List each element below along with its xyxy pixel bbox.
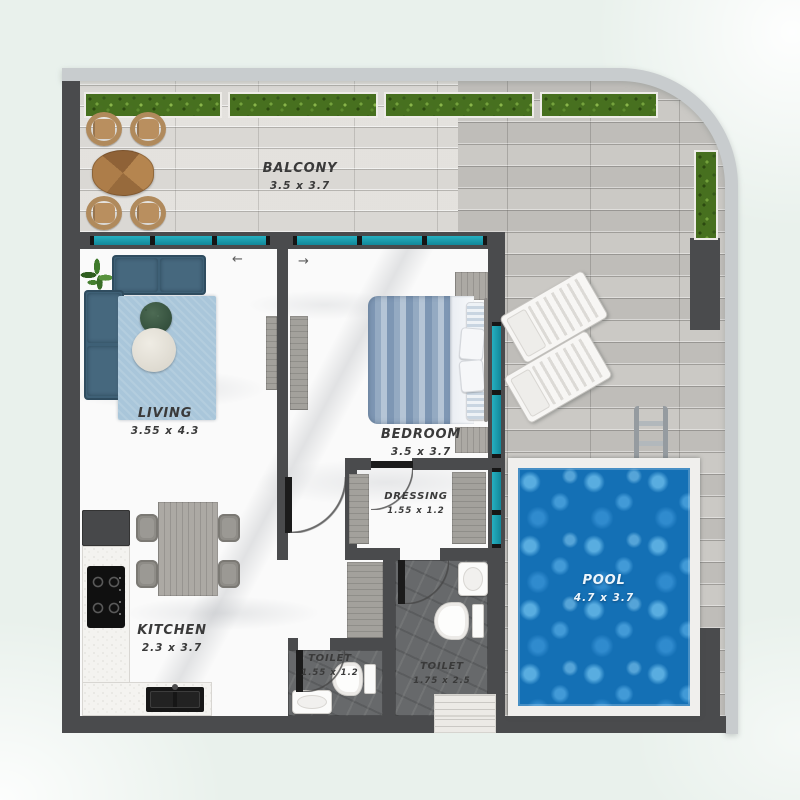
dining-chair xyxy=(136,560,158,588)
pool-dims: 4.7 x 3.7 xyxy=(544,591,664,606)
tv-unit xyxy=(266,316,277,390)
bedroom-label: BEDROOM 3.5 x 3.7 xyxy=(366,426,476,460)
fridge xyxy=(82,510,130,546)
kitchen-sink xyxy=(146,687,204,712)
dressing-name: DRESSING xyxy=(376,490,456,505)
living-dims: 3.55 x 4.3 xyxy=(115,424,215,439)
hedge-planter xyxy=(228,92,378,118)
dining-chair xyxy=(218,514,240,542)
toilet-tank xyxy=(472,604,484,638)
dressing-label: DRESSING 1.55 x 1.2 xyxy=(376,490,456,517)
toilet-large-name: TOILET xyxy=(398,660,486,675)
wall-left xyxy=(62,81,80,716)
toilet-small-name: TOILET xyxy=(298,652,362,667)
outdoor-chair xyxy=(86,196,122,230)
entrance-step xyxy=(434,694,496,716)
window-mullion xyxy=(492,510,501,515)
toilet-large-dims: 1.75 x 2.5 xyxy=(398,675,486,687)
wall-dressing-south-a xyxy=(345,548,400,560)
pool-name: POOL xyxy=(544,572,664,591)
hedge-planter xyxy=(540,92,658,118)
bed-duvet xyxy=(368,296,454,424)
bedroom-dims: 3.5 x 3.7 xyxy=(366,445,476,460)
door-leaf-toilet-large xyxy=(398,560,405,604)
hedge-planter xyxy=(384,92,534,118)
living-window xyxy=(90,236,270,245)
coffee-table-cream xyxy=(132,328,176,372)
balcony-label: BALCONY 3.5 x 3.7 xyxy=(240,160,360,194)
dining-table xyxy=(158,502,218,596)
bedroom-wardrobe xyxy=(290,316,308,410)
wall-bottom xyxy=(62,716,726,733)
toilet-small-label: TOILET 1.55 x 1.2 xyxy=(298,652,362,679)
toilet-tank xyxy=(364,664,376,694)
wall-dressing-south-b xyxy=(440,548,488,560)
outdoor-chair xyxy=(86,112,122,146)
cooktop xyxy=(87,566,125,628)
door-leaf-dressing xyxy=(371,461,413,468)
dressing-wardrobe-left xyxy=(349,474,369,544)
door-arc-toilet-large xyxy=(405,560,449,604)
wall-toilet-north-b xyxy=(330,638,383,650)
bed-headboard xyxy=(484,298,488,422)
kitchen-label: KITCHEN 2.3 x 3.7 xyxy=(122,622,222,656)
kitchen-name: KITCHEN xyxy=(122,622,222,641)
bedroom-window-right xyxy=(492,322,501,458)
dining-chair xyxy=(218,560,240,588)
outdoor-chair xyxy=(130,112,166,146)
window-mullion xyxy=(422,236,427,245)
wall-toilets-divider xyxy=(383,560,395,716)
living-label: LIVING 3.55 x 4.3 xyxy=(115,405,215,439)
pool-label: POOL 4.7 x 3.7 xyxy=(544,572,664,606)
balcony-dims: 3.5 x 3.7 xyxy=(240,179,360,194)
bed-pillow xyxy=(459,327,486,361)
hall-closet xyxy=(347,562,383,638)
potted-plant xyxy=(80,258,114,292)
wall-terrace-column-upper xyxy=(690,238,720,330)
window-mullion xyxy=(212,236,217,245)
kitchen-dims: 2.3 x 3.7 xyxy=(122,641,222,656)
dressing-dims: 1.55 x 1.2 xyxy=(376,505,456,517)
wall-toilet-north-a xyxy=(288,638,298,650)
sofa-top xyxy=(112,255,206,295)
bedroom-name: BEDROOM xyxy=(366,426,476,445)
bedroom-window-top xyxy=(293,236,487,245)
washbasin-large xyxy=(458,562,488,596)
toilet-large-label: TOILET 1.75 x 2.5 xyxy=(398,660,486,687)
toilet-small-dims: 1.55 x 1.2 xyxy=(298,667,362,679)
window-mullion xyxy=(492,390,501,395)
bed xyxy=(368,296,488,424)
hedge-planter-right xyxy=(694,150,718,240)
door-arc-hall xyxy=(290,477,346,533)
dining-chair xyxy=(136,514,158,542)
living-name: LIVING xyxy=(115,405,215,424)
washbasin-small xyxy=(292,690,332,714)
door-swing-arrow: → xyxy=(298,255,309,268)
toilet-bowl xyxy=(434,602,469,640)
balcony-name: BALCONY xyxy=(240,160,360,179)
door-swing-arrow: ← xyxy=(232,253,243,266)
entrance-gap xyxy=(434,716,496,733)
dressing-wardrobe-right xyxy=(452,472,486,544)
window-mullion xyxy=(357,236,362,245)
floor-plan-canvas: ← → xyxy=(0,0,800,800)
outdoor-table xyxy=(92,150,154,196)
bed-pillow xyxy=(459,359,486,393)
toilet-fixture-large xyxy=(434,602,484,640)
outdoor-chair xyxy=(130,196,166,230)
window-mullion xyxy=(150,236,155,245)
dressing-window-right xyxy=(492,468,501,548)
